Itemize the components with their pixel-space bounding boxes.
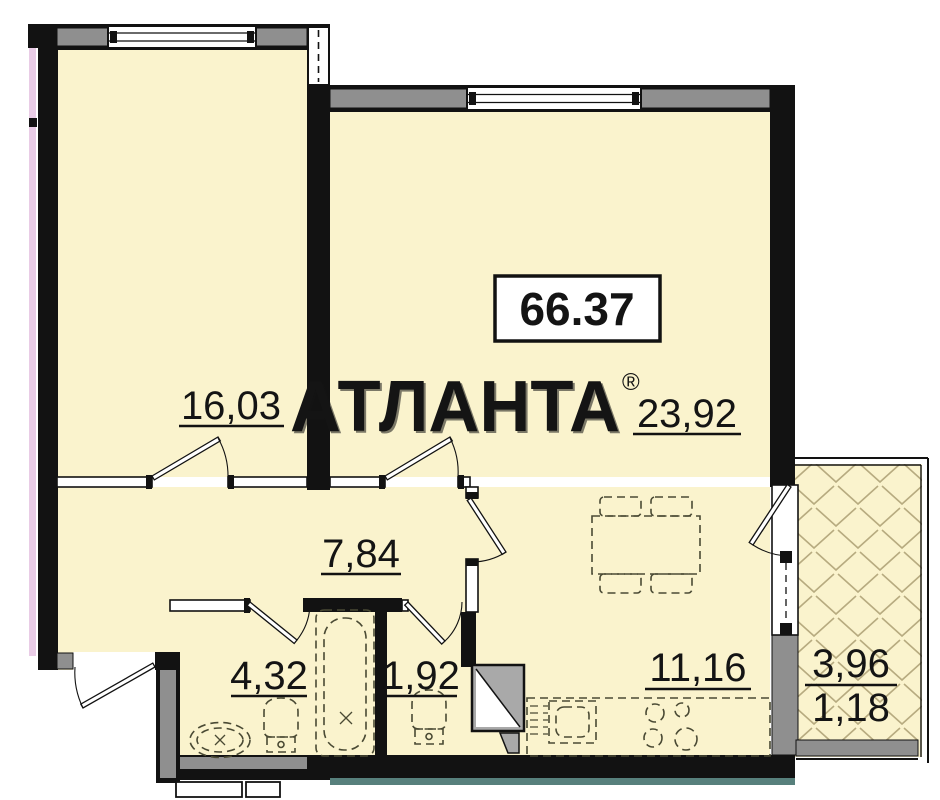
sill-bedroom-left [330, 89, 467, 108]
wall-wc-right [461, 612, 476, 667]
bottom-wall-fill [180, 757, 307, 769]
teal-baseline-strip [330, 778, 795, 785]
wall-dashed-opening [309, 28, 328, 84]
room-label-balcony-reduced: 1,18 [812, 686, 890, 730]
entrance-opening-gap [73, 652, 155, 670]
balcony-bottom-bar [796, 740, 918, 756]
room-label-bedroom: 23,92 [637, 392, 737, 436]
floor-plan-page: АТЛАНТА АТЛАНТА ® [0, 0, 940, 800]
sill-entrance [57, 653, 73, 669]
room-label-living: 16,03 [181, 384, 281, 428]
sill-bedroom-right [641, 89, 770, 108]
window-bedroom [467, 87, 641, 110]
room-label-kitchen: 11,16 [649, 646, 746, 690]
pink-edge-strip [29, 48, 36, 656]
wall-tick [29, 118, 37, 127]
room-label-hallway: 7,84 [322, 532, 400, 576]
window-living [108, 26, 256, 48]
bathroom-wall-fill [160, 670, 176, 778]
total-area-box: 66.37 [495, 276, 660, 341]
outside-area [28, 670, 156, 800]
watermark: АТЛАНТА АТЛАНТА ® [290, 367, 640, 449]
bottom-ledges [176, 782, 280, 797]
sill-living-right [256, 28, 307, 46]
room-label-balcony-total: 3,96 [812, 642, 890, 686]
room-label-bathroom: 4,32 [230, 654, 308, 698]
wall-left [38, 24, 58, 670]
floor-plan: АТЛАНТА АТЛАНТА ® [0, 0, 940, 800]
wall-right [770, 85, 795, 487]
total-area-value: 66.37 [519, 283, 634, 335]
sill-living-left [57, 28, 108, 46]
room-label-wc: 1,92 [382, 654, 460, 698]
balcony-parapet-block [772, 635, 798, 755]
watermark-text: АТЛАНТА [290, 367, 620, 447]
